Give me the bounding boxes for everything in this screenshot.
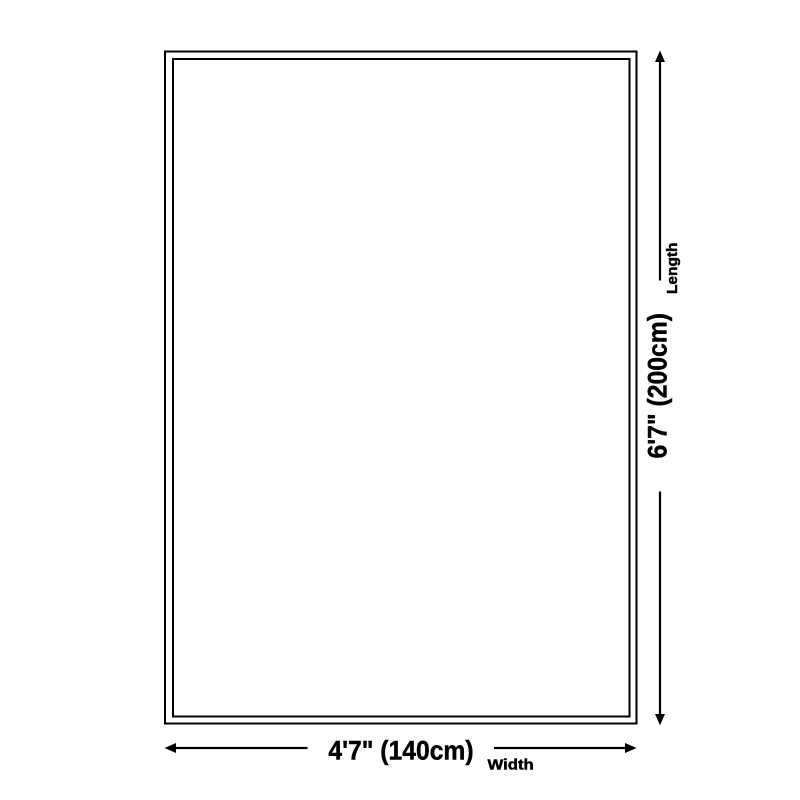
svg-text:4'7" (140cm): 4'7" (140cm)	[328, 736, 473, 766]
svg-text:Length: Length	[664, 243, 681, 295]
svg-text:Width: Width	[488, 757, 534, 774]
svg-text:6'7" (200cm): 6'7" (200cm)	[643, 313, 673, 459]
